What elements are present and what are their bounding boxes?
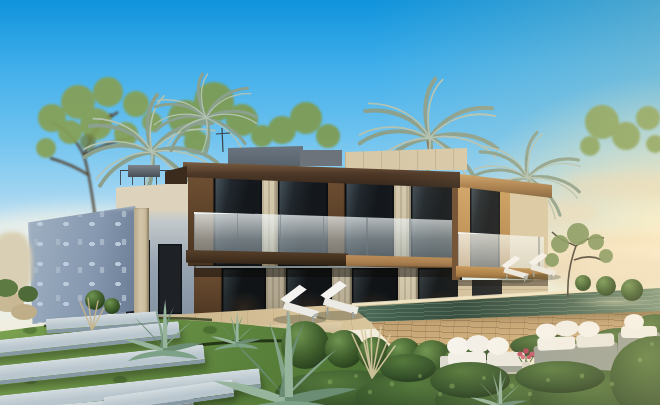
- agave-plant: [211, 311, 261, 350]
- agave-plant: [123, 300, 202, 362]
- foreground-scene: [0, 0, 660, 405]
- left-edge-planting: [0, 279, 38, 320]
- sun-lounger-terrace: [313, 281, 366, 321]
- villa-rendering: [0, 0, 660, 405]
- sun-lounger-terrace: [273, 285, 326, 325]
- terrace-bushes: [575, 275, 643, 301]
